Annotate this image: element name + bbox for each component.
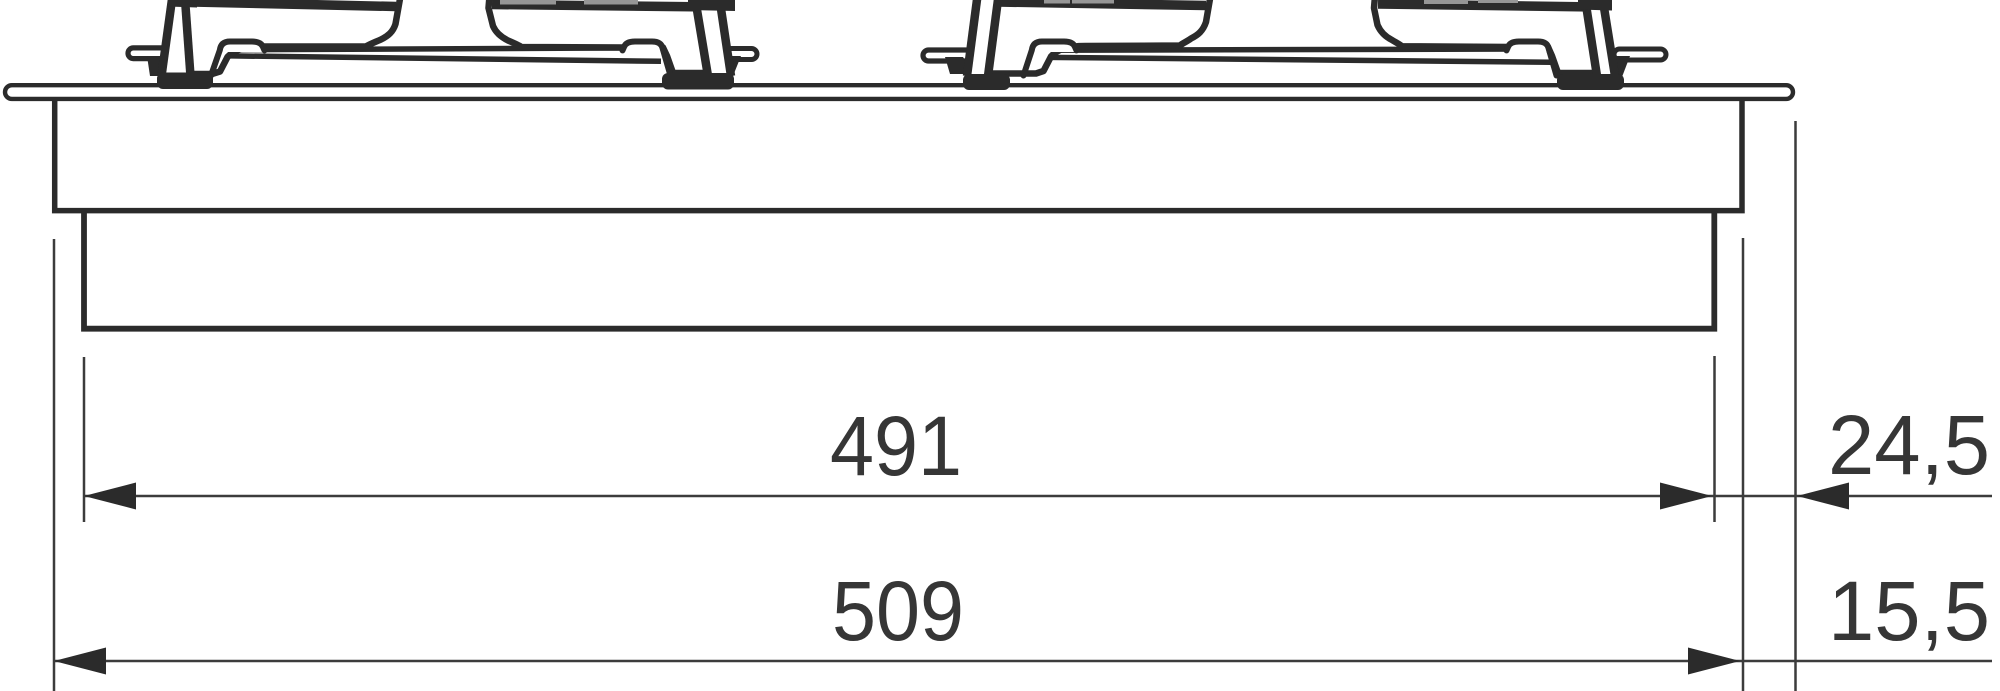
svg-text:509: 509	[832, 564, 964, 658]
svg-text:15,5: 15,5	[1828, 564, 1990, 658]
svg-text:24,5: 24,5	[1828, 398, 1990, 492]
svg-text:491: 491	[830, 399, 962, 493]
